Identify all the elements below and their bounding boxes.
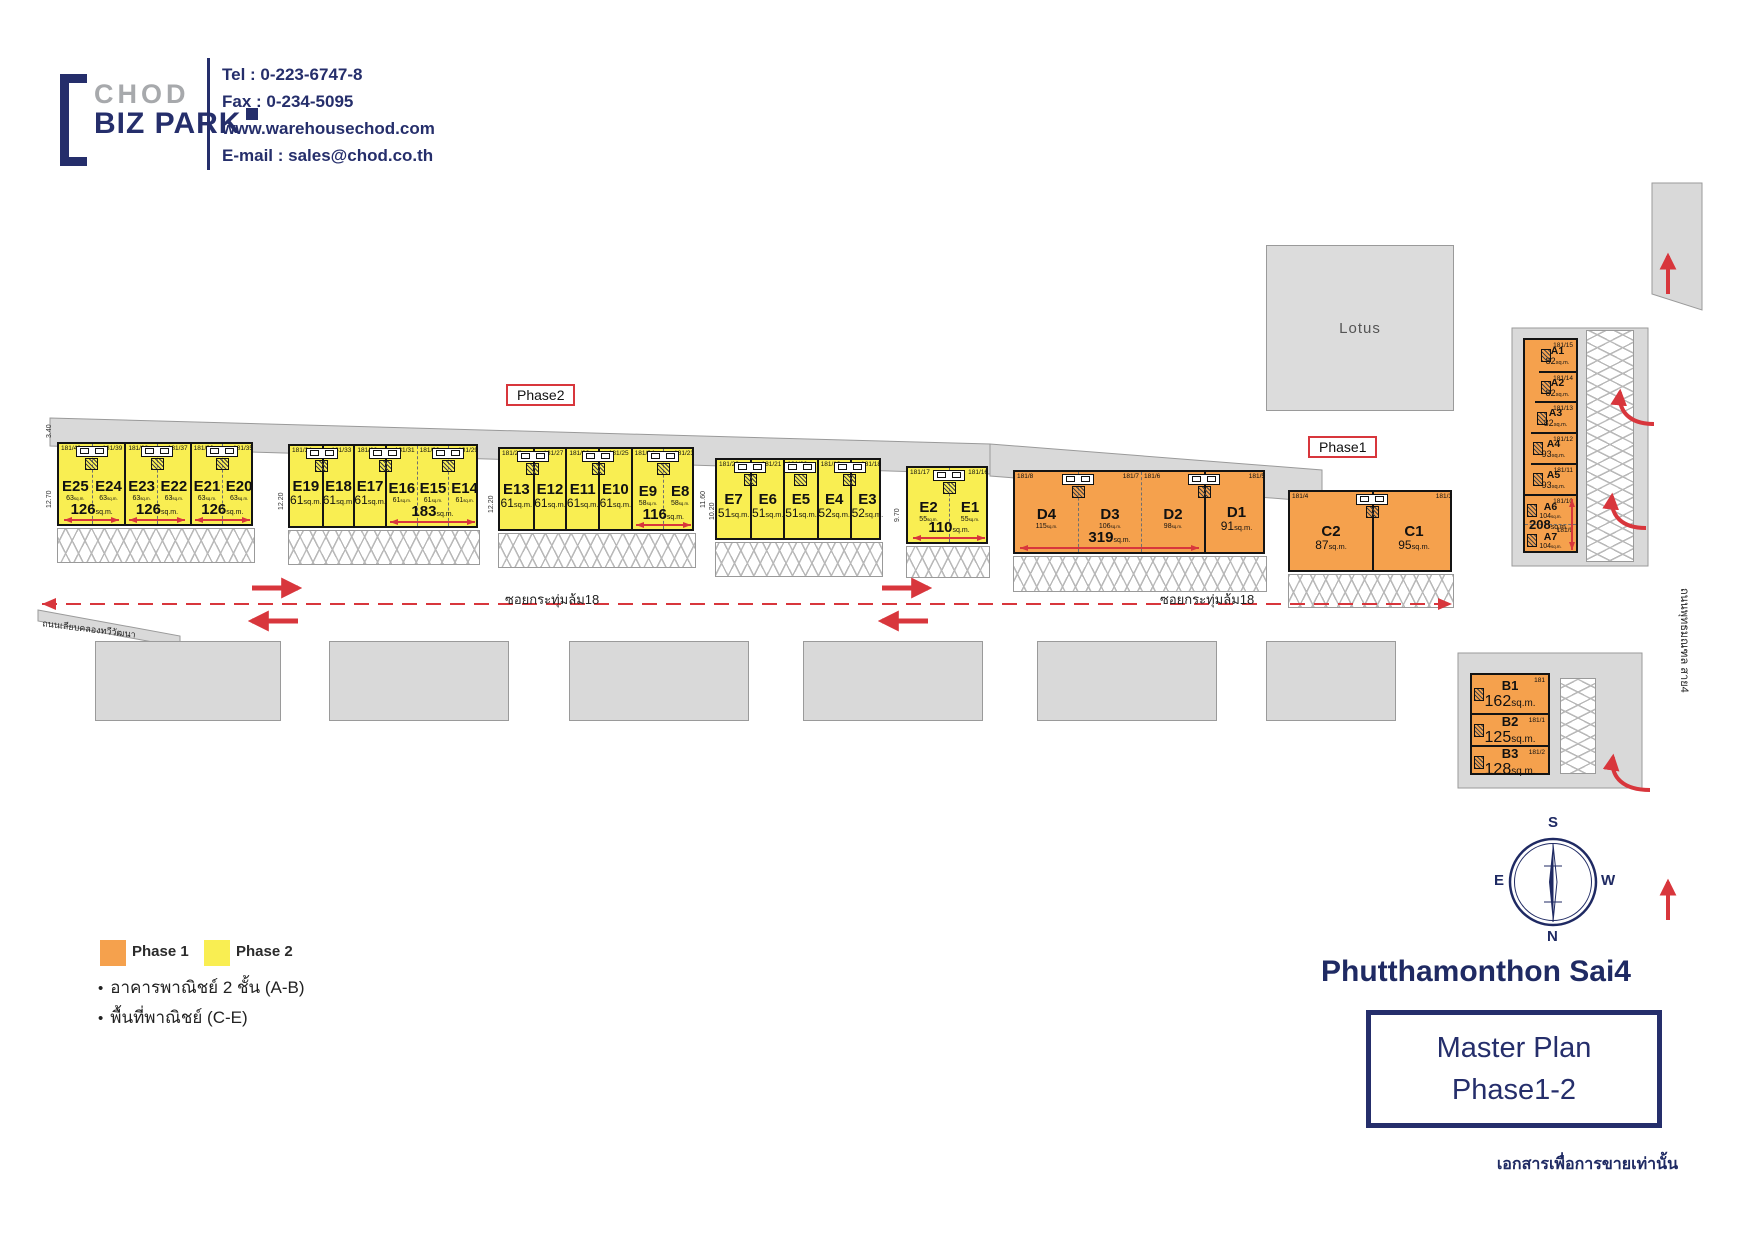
unit-name: E15 xyxy=(420,481,447,497)
unit-area: 63sq.m. xyxy=(198,495,216,503)
unit-A5: 181/11A593sq.m. xyxy=(1531,463,1576,494)
party-wall-icon xyxy=(646,451,680,475)
unit-name: E17 xyxy=(357,479,384,495)
south-building xyxy=(95,641,281,721)
stair-hatch-icon xyxy=(744,474,757,486)
stair-hatch-icon xyxy=(315,460,328,472)
service-box-icon xyxy=(432,448,464,459)
unit-name: A7 xyxy=(1544,532,1557,543)
compass-south-label: S xyxy=(1548,814,1558,831)
parking-strip xyxy=(1560,678,1596,774)
unit-A7: 181/9A7104sq.m. xyxy=(1525,524,1576,555)
unit-area: 63sq.m. xyxy=(230,495,248,503)
unit-area: 51sq.m. xyxy=(752,507,784,520)
unit-name: E13 xyxy=(503,482,530,498)
footer-note: เอกสารเพื่อการขายเท่านั้น xyxy=(1372,1152,1678,1177)
unit-name: E20 xyxy=(226,479,253,495)
unit-B3: 181/2B3128sq.m. xyxy=(1472,745,1548,777)
unit-area: 58sq.m. xyxy=(639,500,657,508)
unit-A1: 181/15A182sq.m. xyxy=(1539,340,1576,371)
unit-name: E2 xyxy=(919,500,937,516)
dimension-label: 12.70 xyxy=(46,490,53,508)
party-wall-icon xyxy=(431,448,465,472)
party-wall-icon xyxy=(205,446,239,470)
unit-area: 61sq.m. xyxy=(354,494,386,507)
unit-name: E5 xyxy=(792,492,810,508)
unit-area: 95sq.m. xyxy=(1398,539,1430,552)
unit-area: 61sq.m. xyxy=(290,494,322,507)
unit-B1: 181B1162sq.m. xyxy=(1472,675,1548,713)
stair-hatch-icon xyxy=(657,463,670,475)
compass: S E W N xyxy=(1488,814,1618,944)
south-building xyxy=(1037,641,1217,721)
unit-name: E14 xyxy=(451,481,478,497)
unit-area: 61sq.m. xyxy=(534,497,566,510)
unit-name: E18 xyxy=(325,479,352,495)
compass-rose-icon xyxy=(1488,814,1618,944)
unit-area: 91sq.m. xyxy=(1221,520,1253,533)
unit-area: 61sq.m. xyxy=(455,497,473,505)
dimension-label: 11.60 xyxy=(700,491,707,508)
south-building xyxy=(329,641,509,721)
unit-name: E8 xyxy=(671,484,689,500)
unit-name: E19 xyxy=(292,479,319,495)
legend-phase2-label: Phase 2 xyxy=(236,943,293,960)
compass-east-label: E xyxy=(1494,872,1504,889)
legend-bullet-commercial-ab: อาคารพาณิชย์ 2 ชั้น (A-B) xyxy=(98,974,305,1001)
service-box-icon xyxy=(369,448,401,459)
party-wall-icon xyxy=(1061,474,1095,498)
unit-area: 106sq.m. xyxy=(1099,523,1121,531)
stair-hatch-icon xyxy=(592,463,605,475)
stair-hatch-icon xyxy=(526,463,539,475)
master-plan-title-box: Master Plan Phase1-2 xyxy=(1366,1010,1662,1128)
unit-name: E9 xyxy=(639,484,657,500)
south-building xyxy=(803,641,983,721)
building-group-E19-E14: 181/34E1961sq.m.181/33E1861sq.m.181/32E1… xyxy=(288,444,478,528)
unit-name: E25 xyxy=(62,479,89,495)
unit-area: 82sq.m. xyxy=(1544,419,1568,429)
unit-area: 61sq.m. xyxy=(600,497,632,510)
unit-area: 61sq.m. xyxy=(323,494,355,507)
unit-area: 63sq.m. xyxy=(66,495,84,503)
unit-name: B3 xyxy=(1502,747,1519,761)
building-group-E7-E3: 181/22E751sq.m.181/21E651sq.m.181/20E551… xyxy=(715,458,881,540)
service-box-icon xyxy=(784,462,816,473)
road-label-sai4: ถนนพุทธมณฑล สาย4 xyxy=(1676,588,1694,693)
unit-area: 93sq.m. xyxy=(1542,450,1566,460)
unit-area: 63sq.m. xyxy=(99,495,117,503)
service-box-icon xyxy=(76,446,108,457)
parcel-number: 181/6 xyxy=(1144,473,1160,480)
parcel-number: 181/1 xyxy=(1529,717,1545,724)
unit-area: 63sq.m. xyxy=(165,495,183,503)
unit-B2: 181/1B2125sq.m. xyxy=(1472,713,1548,745)
parcel-number: 181/10 xyxy=(1553,498,1573,505)
unit-name: B1 xyxy=(1502,679,1519,693)
stair-hatch-icon xyxy=(442,460,455,472)
building-group-C2-C1: 181/4C287sq.m.181/3C195sq.m. xyxy=(1288,490,1452,572)
parcel-number: 181/16 xyxy=(968,469,988,476)
unit-area: 61sq.m. xyxy=(393,497,411,505)
unit-name: E7 xyxy=(724,492,742,508)
parking-strip xyxy=(1586,330,1634,562)
party-wall-icon xyxy=(75,446,109,470)
parcel-number: 181/7 xyxy=(1123,473,1139,480)
legend-phase2-swatch xyxy=(204,940,230,966)
service-box-icon xyxy=(933,470,965,481)
unit-name: D3 xyxy=(1100,507,1119,523)
service-box-icon xyxy=(1188,474,1220,485)
project-area-title: Phutthamonthon Sai4 xyxy=(1321,955,1631,989)
unit-area: 61sq.m. xyxy=(424,497,442,505)
title-line2: Phase1-2 xyxy=(1452,1069,1576,1111)
parcel-number: 181/3 xyxy=(1436,493,1452,500)
parking-strip xyxy=(498,533,696,568)
dimension-label: 12.20 xyxy=(278,492,285,510)
unit-area: 128sq.m. xyxy=(1485,761,1536,779)
parcel-number: 181/15 xyxy=(1553,342,1573,349)
unit-area: 63sq.m. xyxy=(132,495,150,503)
parcel-number: 181/13 xyxy=(1553,405,1573,412)
service-box-icon xyxy=(517,451,549,462)
stair-hatch-icon xyxy=(943,482,956,494)
unit-area: 61sq.m. xyxy=(567,497,599,510)
party-wall-icon xyxy=(733,462,767,486)
party-wall-icon xyxy=(783,462,817,486)
title-line1: Master Plan xyxy=(1437,1027,1592,1069)
building-group-D4-D1: 181/8D4115sq.m.181/7D3106sq.m.181/6D298s… xyxy=(1013,470,1265,554)
building-group-E13-E8: 181/28E1361sq.m.181/27E1261sq.m.181/26E1… xyxy=(498,447,694,531)
party-wall-icon xyxy=(305,448,339,472)
road-label-soi-east: ซอยกระทุ่มล้ม18 xyxy=(1160,589,1254,610)
unit-name: E3 xyxy=(858,492,876,508)
unit-area: 61sq.m. xyxy=(501,497,533,510)
party-wall-icon xyxy=(932,470,966,494)
building-group-A1-A7: 181/15A182sq.m.181/14A282sq.m.181/13A382… xyxy=(1523,338,1578,553)
stair-hatch-icon xyxy=(379,460,392,472)
dimension-label: 12.20 xyxy=(488,495,495,513)
stair-hatch-icon xyxy=(1072,486,1085,498)
parcel-number: 181/5 xyxy=(1249,473,1265,480)
unit-area: 58sq.m. xyxy=(671,500,689,508)
service-box-icon xyxy=(582,451,614,462)
stair-hatch-icon xyxy=(216,458,229,470)
party-wall-icon xyxy=(1187,474,1221,498)
unit-area: 104sq.m. xyxy=(1539,513,1561,521)
stair-hatch-icon xyxy=(1198,486,1211,498)
parcel-number: 181/9 xyxy=(1557,527,1573,534)
party-wall-icon xyxy=(140,446,174,470)
phase2-tag: Phase2 xyxy=(506,384,575,406)
unit-name: D1 xyxy=(1227,505,1246,521)
phase1-tag: Phase1 xyxy=(1308,436,1377,458)
stair-hatch-icon xyxy=(151,458,164,470)
service-box-icon xyxy=(1356,494,1388,505)
parcel-number: 181/4 xyxy=(1292,493,1308,500)
service-box-icon xyxy=(734,462,766,473)
legend-phase1-label: Phase 1 xyxy=(132,943,189,960)
stair-hatch-icon xyxy=(85,458,98,470)
stair-hatch-icon xyxy=(1366,506,1379,518)
unit-name: E23 xyxy=(128,479,155,495)
south-building xyxy=(569,641,749,721)
dimension-label: 10.20 xyxy=(709,502,716,520)
party-wall-icon xyxy=(581,451,615,475)
building-group-E25-E20: 181/40E2563sq.m.181/39E2463sq.m.181/38E2… xyxy=(57,442,253,526)
unit-name: E11 xyxy=(570,482,596,498)
service-box-icon xyxy=(306,448,338,459)
master-plan-canvas: CHOD BIZ PARK Tel : 0-223-6747-8 Fax : 0… xyxy=(0,0,1755,1240)
unit-area: 55sq.m. xyxy=(919,516,937,524)
service-box-icon xyxy=(1062,474,1094,485)
unit-area: 162sq.m. xyxy=(1485,693,1536,711)
south-building xyxy=(1266,641,1396,721)
unit-name: C2 xyxy=(1321,524,1340,540)
parcel-number: 181/11 xyxy=(1554,467,1573,474)
legend-phase1-swatch xyxy=(100,940,126,966)
unit-name: E24 xyxy=(95,479,122,495)
parcel-number: 181 xyxy=(1534,677,1545,684)
unit-A4: 181/12A493sq.m. xyxy=(1531,432,1576,463)
building-group-E2-E1: 181/17E255sq.m.181/16E155sq.m.110sq.m. xyxy=(906,466,988,544)
legend-bullet-commercial-ce: พื้นที่พาณิชย์ (C-E) xyxy=(98,1004,248,1031)
unit-name: D2 xyxy=(1163,507,1182,523)
service-box-icon xyxy=(647,451,679,462)
unit-area: 51sq.m. xyxy=(785,507,817,520)
unit-area: 52sq.m. xyxy=(818,507,850,520)
unit-name: E4 xyxy=(825,492,843,508)
compass-west-label: W xyxy=(1601,872,1615,889)
party-wall-icon xyxy=(516,451,550,475)
unit-area: 104sq.m. xyxy=(1539,543,1561,551)
road-label-soi-west: ซอยกระทุ่มล้ม18 xyxy=(505,589,599,610)
unit-area: 82sq.m. xyxy=(1546,357,1570,367)
unit-name: E22 xyxy=(160,479,187,495)
parking-strip xyxy=(1013,556,1267,592)
parcel-number: 181/12 xyxy=(1553,436,1573,443)
parcel-number: 181/14 xyxy=(1553,375,1573,382)
unit-area: 87sq.m. xyxy=(1315,539,1347,552)
unit-area: 98sq.m. xyxy=(1164,523,1182,531)
unit-area: 93sq.m. xyxy=(1542,481,1566,491)
unit-name: E16 xyxy=(388,481,415,497)
unit-A2: 181/14A282sq.m. xyxy=(1539,371,1576,402)
parking-strip xyxy=(715,542,883,577)
unit-name: D4 xyxy=(1037,507,1056,523)
stair-hatch-icon xyxy=(843,474,856,486)
unit-area: 52sq.m. xyxy=(852,507,884,520)
parcel-number: 181/2 xyxy=(1529,749,1545,756)
service-box-icon xyxy=(834,462,866,473)
unit-name: E6 xyxy=(759,492,777,508)
parcel-number: 181/17 xyxy=(910,469,930,476)
stair-hatch-icon xyxy=(794,474,807,486)
dimension-label: 3.40 xyxy=(46,424,53,438)
parking-strip xyxy=(906,546,990,578)
party-wall-icon xyxy=(368,448,402,472)
unit-area: 82sq.m. xyxy=(1546,389,1570,399)
compass-north-label: N xyxy=(1547,928,1558,945)
unit-A3: 181/13A382sq.m. xyxy=(1535,401,1576,432)
unit-name: E1 xyxy=(961,500,979,516)
dimension-label: 9.70 xyxy=(894,508,901,522)
unit-name: E21 xyxy=(194,479,221,495)
unit-name: B2 xyxy=(1502,715,1519,729)
unit-name: C1 xyxy=(1404,524,1423,540)
unit-area: 125sq.m. xyxy=(1485,729,1536,747)
service-box-icon xyxy=(206,446,238,457)
unit-name: E12 xyxy=(537,482,564,498)
unit-name: E10 xyxy=(602,482,629,498)
unit-area: 115sq.m. xyxy=(1036,523,1058,531)
service-box-icon xyxy=(141,446,173,457)
unit-A6: 181/10A6104sq.m. xyxy=(1525,494,1576,525)
building-group-B1-B3: 181B1162sq.m.181/1B2125sq.m.181/2B3128sq… xyxy=(1470,673,1550,775)
parking-strip xyxy=(1288,574,1454,608)
unit-area: 55sq.m. xyxy=(961,516,979,524)
unit-area: 51sq.m. xyxy=(718,507,750,520)
parcel-number: 181/8 xyxy=(1017,473,1033,480)
party-wall-icon xyxy=(833,462,867,486)
party-wall-icon xyxy=(1355,494,1389,518)
parking-strip xyxy=(57,528,255,563)
parking-strip xyxy=(288,530,480,565)
